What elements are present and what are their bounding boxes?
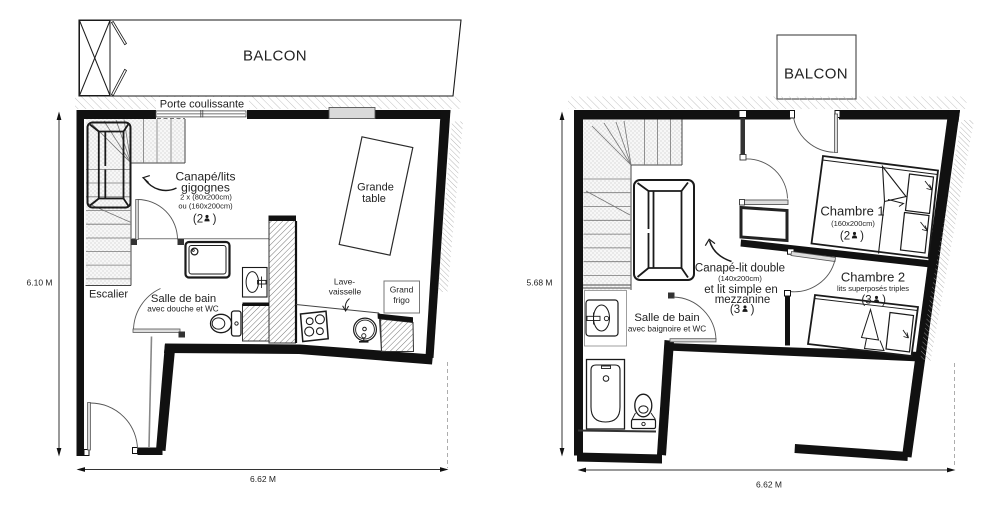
svg-text:Porte coulissante: Porte coulissante [160, 99, 244, 111]
svg-text:): ) [860, 231, 864, 243]
svg-text:Chambre 2: Chambre 2 [841, 270, 905, 285]
svg-text:(160x200cm): (160x200cm) [831, 219, 875, 228]
svg-text:avec douche et WC: avec douche et WC [147, 305, 219, 314]
svg-text:Grande: Grande [357, 182, 394, 194]
svg-text:Grand: Grand [390, 285, 414, 295]
svg-text:lits superposés triples: lits superposés triples [837, 284, 909, 293]
svg-text:avec baignoire et WC: avec baignoire et WC [628, 325, 706, 334]
svg-text:): ) [751, 304, 755, 316]
svg-text:table: table [362, 193, 386, 205]
svg-text:6.62 M: 6.62 M [250, 474, 276, 484]
svg-text:vaisselle: vaisselle [329, 287, 362, 297]
svg-text:): ) [213, 214, 217, 226]
svg-text:(3: (3 [861, 295, 871, 307]
svg-text:6.10 M: 6.10 M [27, 278, 53, 288]
svg-text:Salle de bain: Salle de bain [634, 312, 699, 324]
svg-text:(2: (2 [193, 214, 203, 226]
svg-text:ou (160x200cm): ou (160x200cm) [178, 202, 233, 211]
svg-text:BALCON: BALCON [243, 48, 307, 65]
svg-text:(3: (3 [730, 304, 740, 316]
svg-text:(140x200cm): (140x200cm) [718, 274, 762, 283]
svg-text:Chambre 1: Chambre 1 [820, 204, 884, 219]
svg-text:mezzanine: mezzanine [715, 294, 771, 306]
svg-text:Escalier: Escalier [89, 289, 128, 301]
svg-text:(2: (2 [840, 231, 850, 243]
svg-text:5.68 M: 5.68 M [527, 278, 553, 288]
svg-text:Canapé-lit double: Canapé-lit double [695, 263, 785, 275]
svg-text:Salle de bain: Salle de bain [151, 293, 216, 305]
svg-text:BALCON: BALCON [784, 66, 848, 83]
svg-text:6.62 M: 6.62 M [756, 480, 782, 490]
svg-text:frigo: frigo [393, 295, 410, 305]
svg-text:): ) [882, 295, 886, 307]
svg-text:2 x (80x200cm): 2 x (80x200cm) [180, 193, 232, 202]
svg-text:Lave-: Lave- [334, 277, 355, 287]
